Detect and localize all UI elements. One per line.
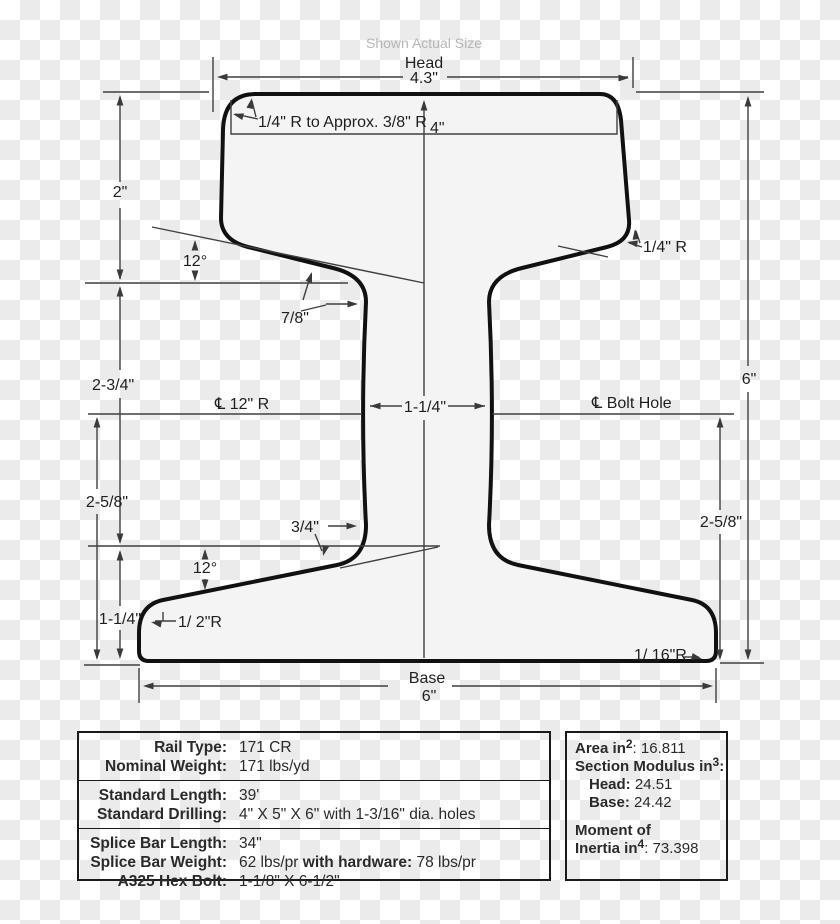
- dim-2-5-8-right: 2-5/8": [700, 514, 742, 531]
- radius-1-16-label: 1/ 16"R: [634, 647, 687, 664]
- rail-type-label: Rail Type:: [85, 739, 227, 756]
- splice-bar-length-value: 34": [239, 835, 543, 852]
- table-row: Splice Bar Weight: 62 lbs/pr with hardwa…: [79, 853, 549, 872]
- centerline-bolt-hole-label: ℄ Bolt Hole: [591, 395, 672, 412]
- splice-bar-weight-value: 62 lbs/pr with hardware: 78 lbs/pr: [239, 854, 543, 871]
- nominal-weight-value: 171 lbs/yd: [239, 758, 543, 775]
- table-row: Splice Bar Length: 34": [79, 834, 549, 853]
- dim-2in: 2": [113, 184, 128, 201]
- table-row: Nominal Weight: 171 lbs/yd: [79, 757, 549, 776]
- overall-height-dim: 6": [742, 371, 757, 388]
- angle-upper: 12°: [183, 253, 207, 270]
- standard-length-label: Standard Length:: [85, 787, 227, 804]
- dim-3-4: 3/4": [291, 519, 319, 536]
- moment-line-2: Inertia in4: 73.398: [575, 840, 718, 858]
- standard-drilling-value: 4" X 5" X 6" with 1-3/16" dia. holes: [239, 806, 543, 823]
- rail-type-value: 171 CR: [239, 739, 543, 756]
- shown-actual-size-label: Shown Actual Size: [366, 35, 482, 51]
- splice-bar-length-label: Splice Bar Length:: [85, 835, 227, 852]
- angle-lower: 12°: [193, 560, 217, 577]
- base-width-dim: 6": [422, 688, 437, 705]
- modulus-head-line: Head: 24.51: [575, 776, 718, 794]
- head-width-dim: 4.3": [410, 70, 438, 87]
- hex-bolt-value: 1-1/8" X 6-1/2": [239, 873, 543, 890]
- modulus-base-line: Base: 24.42: [575, 794, 718, 812]
- nominal-weight-label: Nominal Weight:: [85, 758, 227, 775]
- moment-line-1: Moment of: [575, 822, 718, 840]
- base-label: Base: [409, 670, 446, 687]
- table-row: A325 Hex Bolt: 1-1/8" X 6-1/2": [79, 872, 549, 891]
- table-row: Rail Type: 171 CR: [79, 738, 549, 757]
- spec-section-splice: Splice Bar Length: 34" Splice Bar Weight…: [79, 828, 549, 895]
- rail-section-diagram: Shown Actual Size Head 4.3" 1/4" R to Ap…: [0, 0, 840, 924]
- radius-half-label: 1/ 2"R: [178, 614, 222, 631]
- head-height-dim: 4": [430, 120, 445, 137]
- area-line: Area in2: 16.811: [575, 740, 718, 758]
- standard-drilling-label: Standard Drilling:: [85, 806, 227, 823]
- standard-length-value: 39': [239, 787, 543, 804]
- rail-outline: [139, 94, 716, 661]
- centerline-12r-label: ℄ 12" R: [214, 396, 269, 413]
- rail-spec-table: Rail Type: 171 CR Nominal Weight: 171 lb…: [77, 731, 551, 881]
- dim-2-5-8-left: 2-5/8": [86, 494, 128, 511]
- web-thickness-dim: 1-1/4": [404, 399, 446, 416]
- dim-7-8: 7/8": [281, 310, 309, 327]
- dim-2-3-4: 2-3/4": [92, 377, 134, 394]
- hex-bolt-label: A325 Hex Bolt:: [85, 873, 227, 890]
- section-modulus-line: Section Modulus in3:: [575, 758, 718, 776]
- spec-section-standard: Standard Length: 39' Standard Drilling: …: [79, 780, 549, 828]
- radius-quarter-right: 1/4" R: [643, 239, 687, 256]
- head-radius-note: 1/4" R to Approx. 3/8" R: [258, 114, 427, 131]
- section-properties-table: Area in2: 16.811 Section Modulus in3: He…: [565, 731, 728, 881]
- splice-bar-weight-label: Splice Bar Weight:: [85, 854, 227, 871]
- table-row: Standard Drilling: 4" X 5" X 6" with 1-3…: [79, 805, 549, 824]
- spec-section-identity: Rail Type: 171 CR Nominal Weight: 171 lb…: [79, 733, 549, 780]
- dim-1-1-4-base: 1-1/4": [99, 611, 141, 628]
- table-row: Standard Length: 39': [79, 786, 549, 805]
